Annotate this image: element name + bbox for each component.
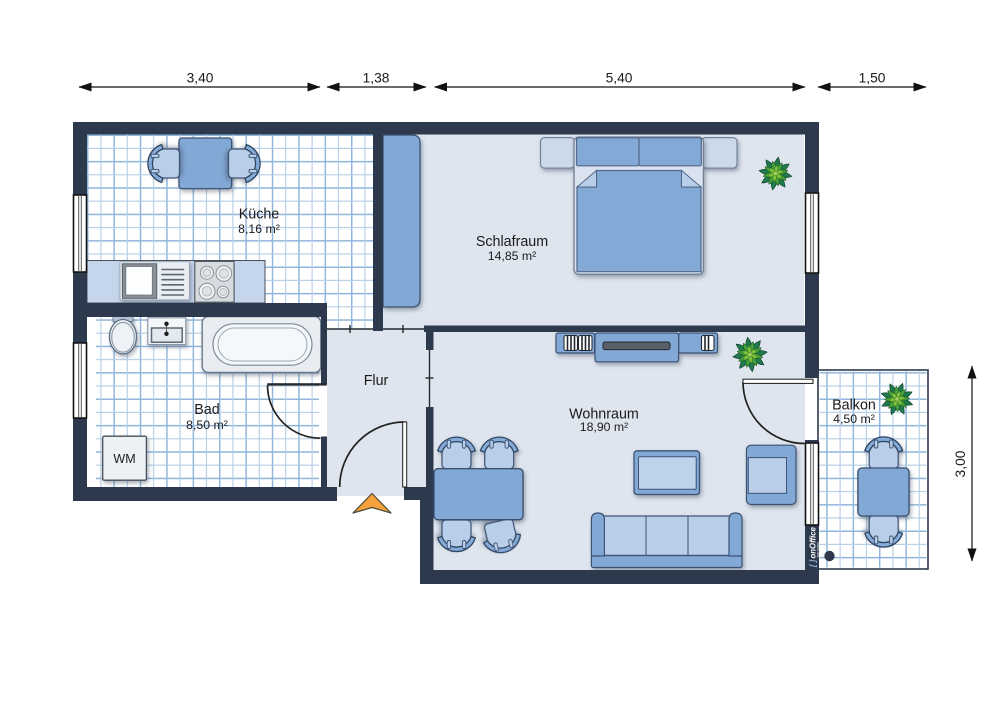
svg-text:Küche: Küche: [239, 207, 280, 223]
svg-text:8,50 m²: 8,50 m²: [186, 418, 228, 432]
svg-text:Flur: Flur: [364, 373, 389, 389]
svg-text:3,00: 3,00: [953, 450, 968, 477]
svg-text:Schlafraum: Schlafraum: [476, 234, 548, 250]
svg-text:8,16 m²: 8,16 m²: [238, 222, 280, 236]
svg-text:3,40: 3,40: [187, 71, 214, 86]
svg-text:Bad: Bad: [194, 402, 219, 418]
svg-text:SOFTWARE: SOFTWARE: [816, 542, 820, 558]
svg-text:18,90 m²: 18,90 m²: [580, 420, 629, 434]
svg-text:1,50: 1,50: [859, 71, 886, 86]
svg-text:4,50 m²: 4,50 m²: [833, 412, 875, 426]
svg-text:[ ]: [ ]: [809, 559, 818, 568]
svg-text:WM: WM: [113, 452, 135, 466]
svg-text:5,40: 5,40: [606, 71, 633, 86]
svg-text:14,85 m²: 14,85 m²: [488, 249, 537, 263]
svg-text:1,38: 1,38: [363, 71, 390, 86]
